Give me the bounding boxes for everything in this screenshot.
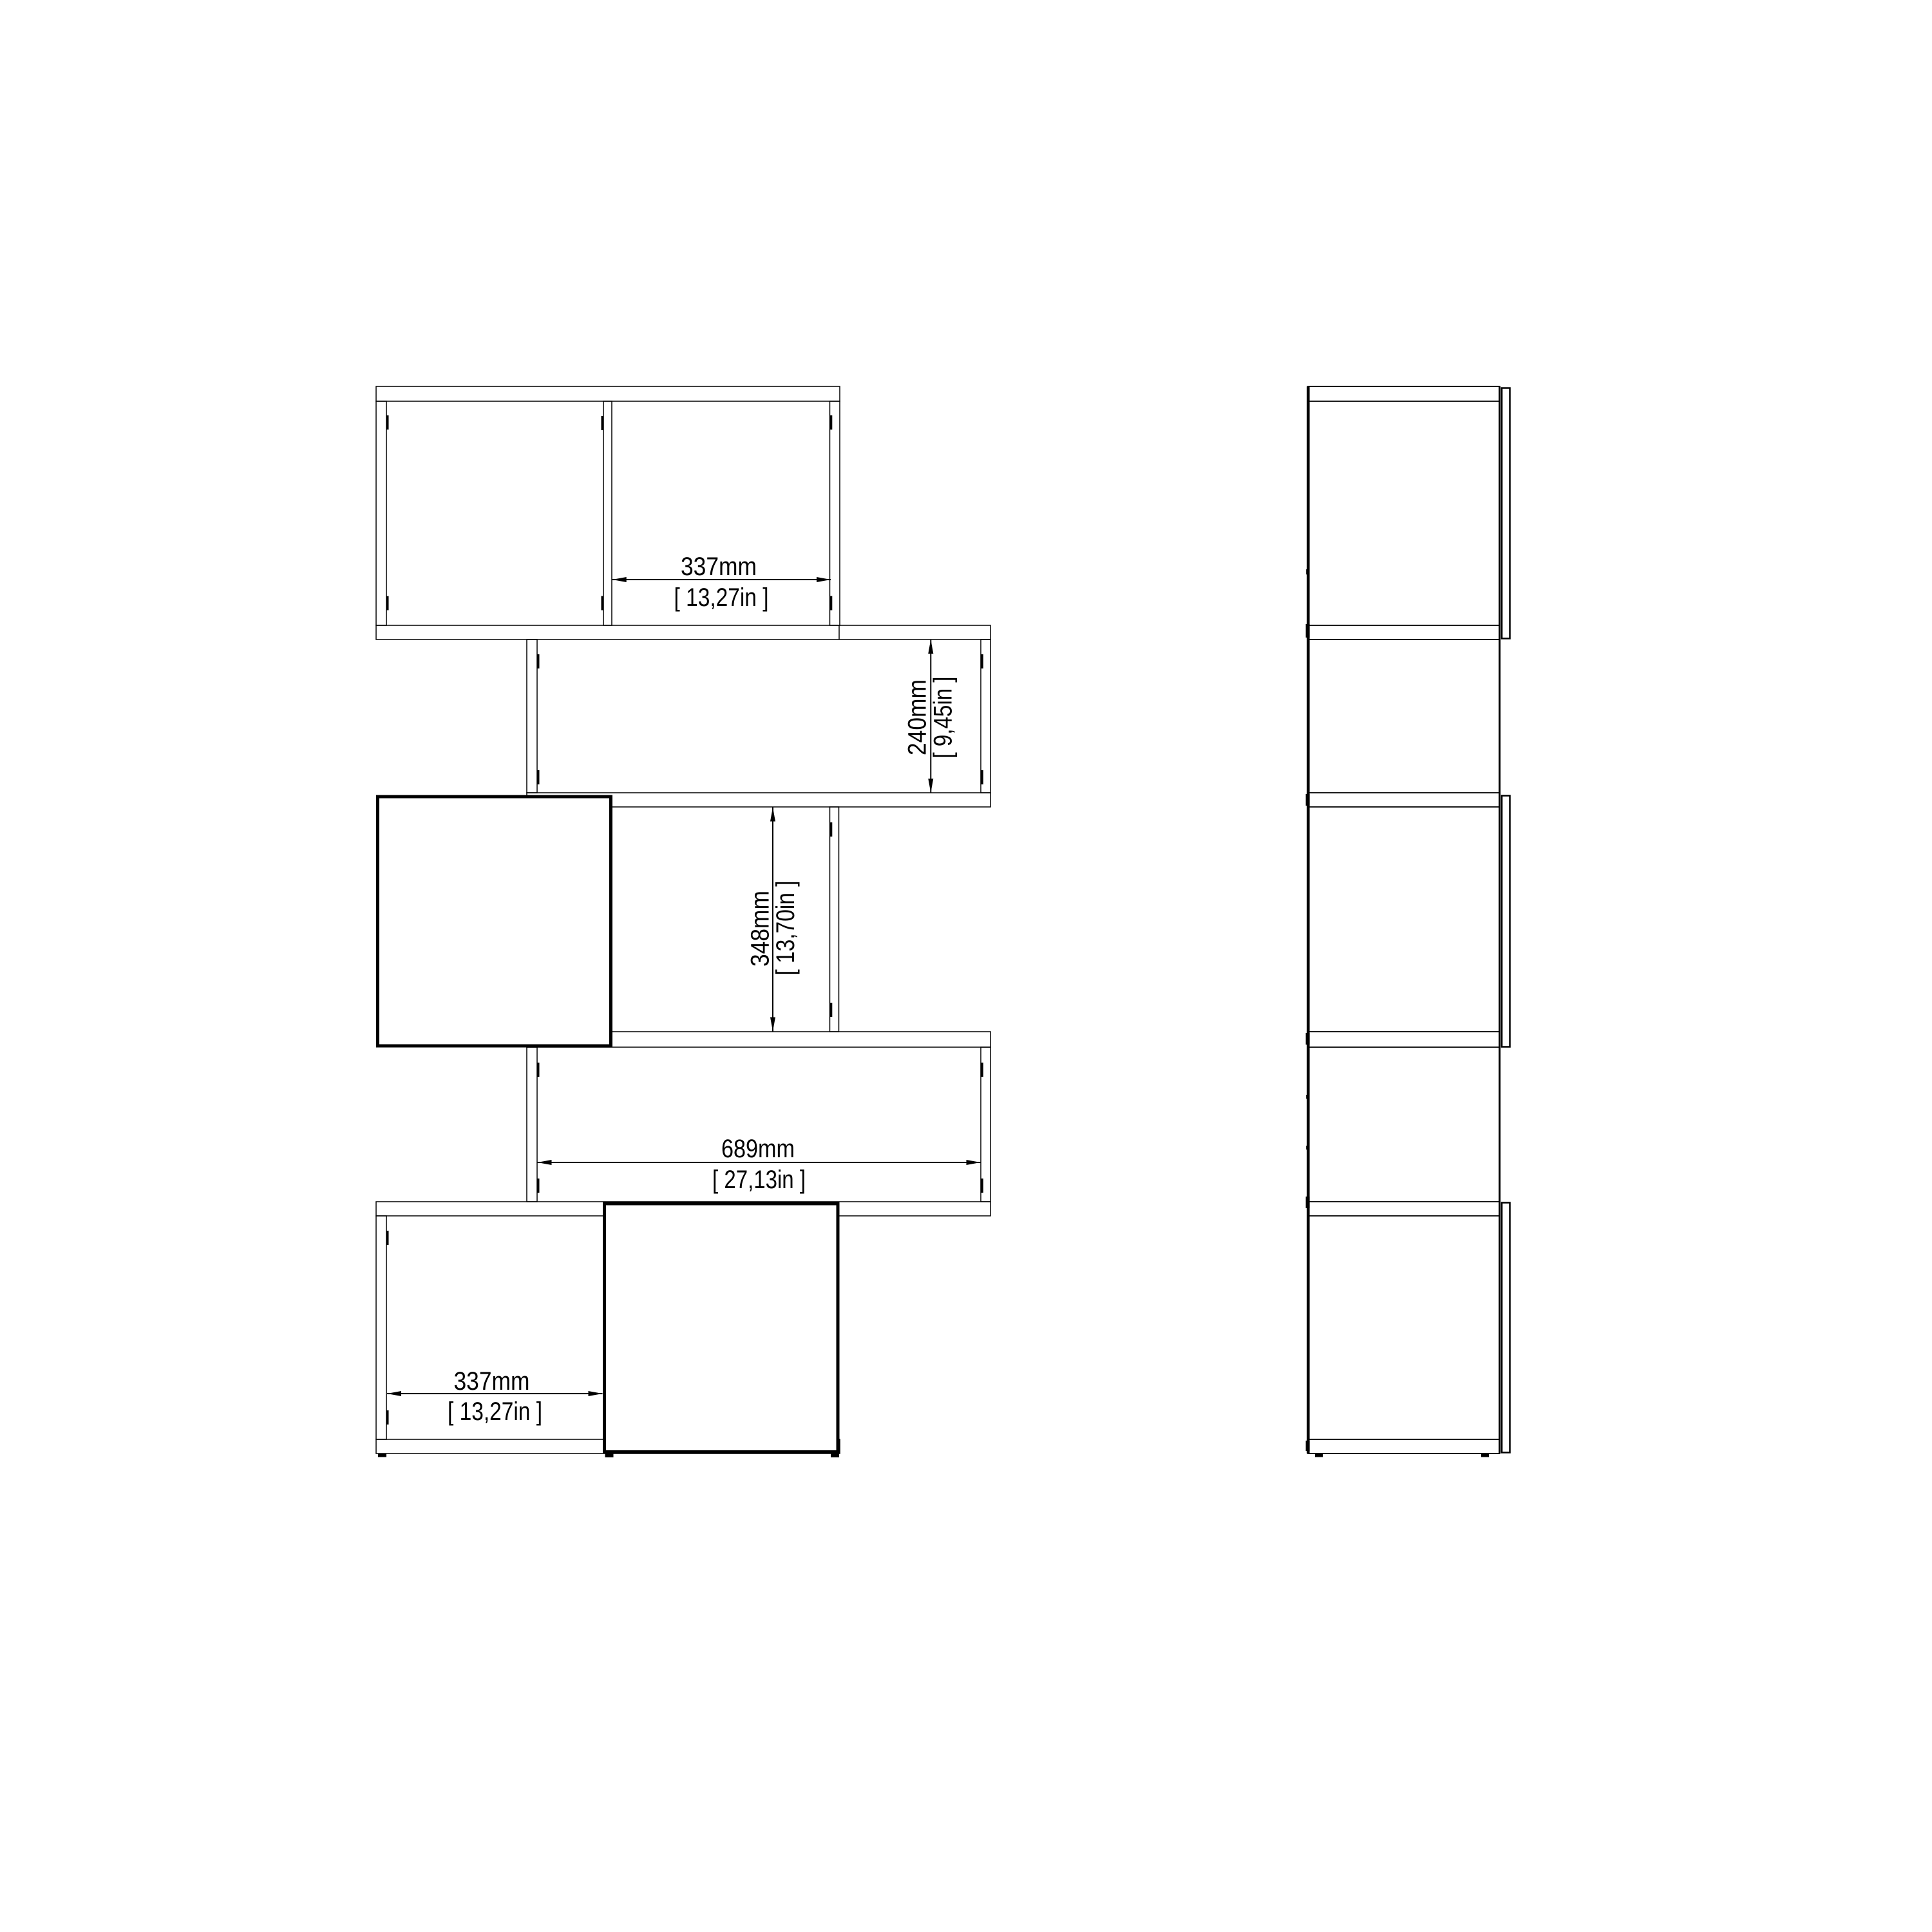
svg-text:[ 13,27in ]: [ 13,27in ] [448,1397,542,1426]
svg-text:[ 13,27in ]: [ 13,27in ] [674,583,769,612]
svg-text:689mm: 689mm [721,1135,795,1163]
svg-text:[ 9,45in ]: [ 9,45in ] [929,677,958,759]
svg-text:[ 13,70in ]: [ 13,70in ] [772,881,800,976]
svg-text:337mm: 337mm [681,553,757,581]
svg-text:240mm: 240mm [904,679,932,755]
svg-text:337mm: 337mm [454,1367,530,1396]
svg-text:348mm: 348mm [746,891,775,967]
svg-text:[ 27,13in ]: [ 27,13in ] [712,1166,806,1194]
